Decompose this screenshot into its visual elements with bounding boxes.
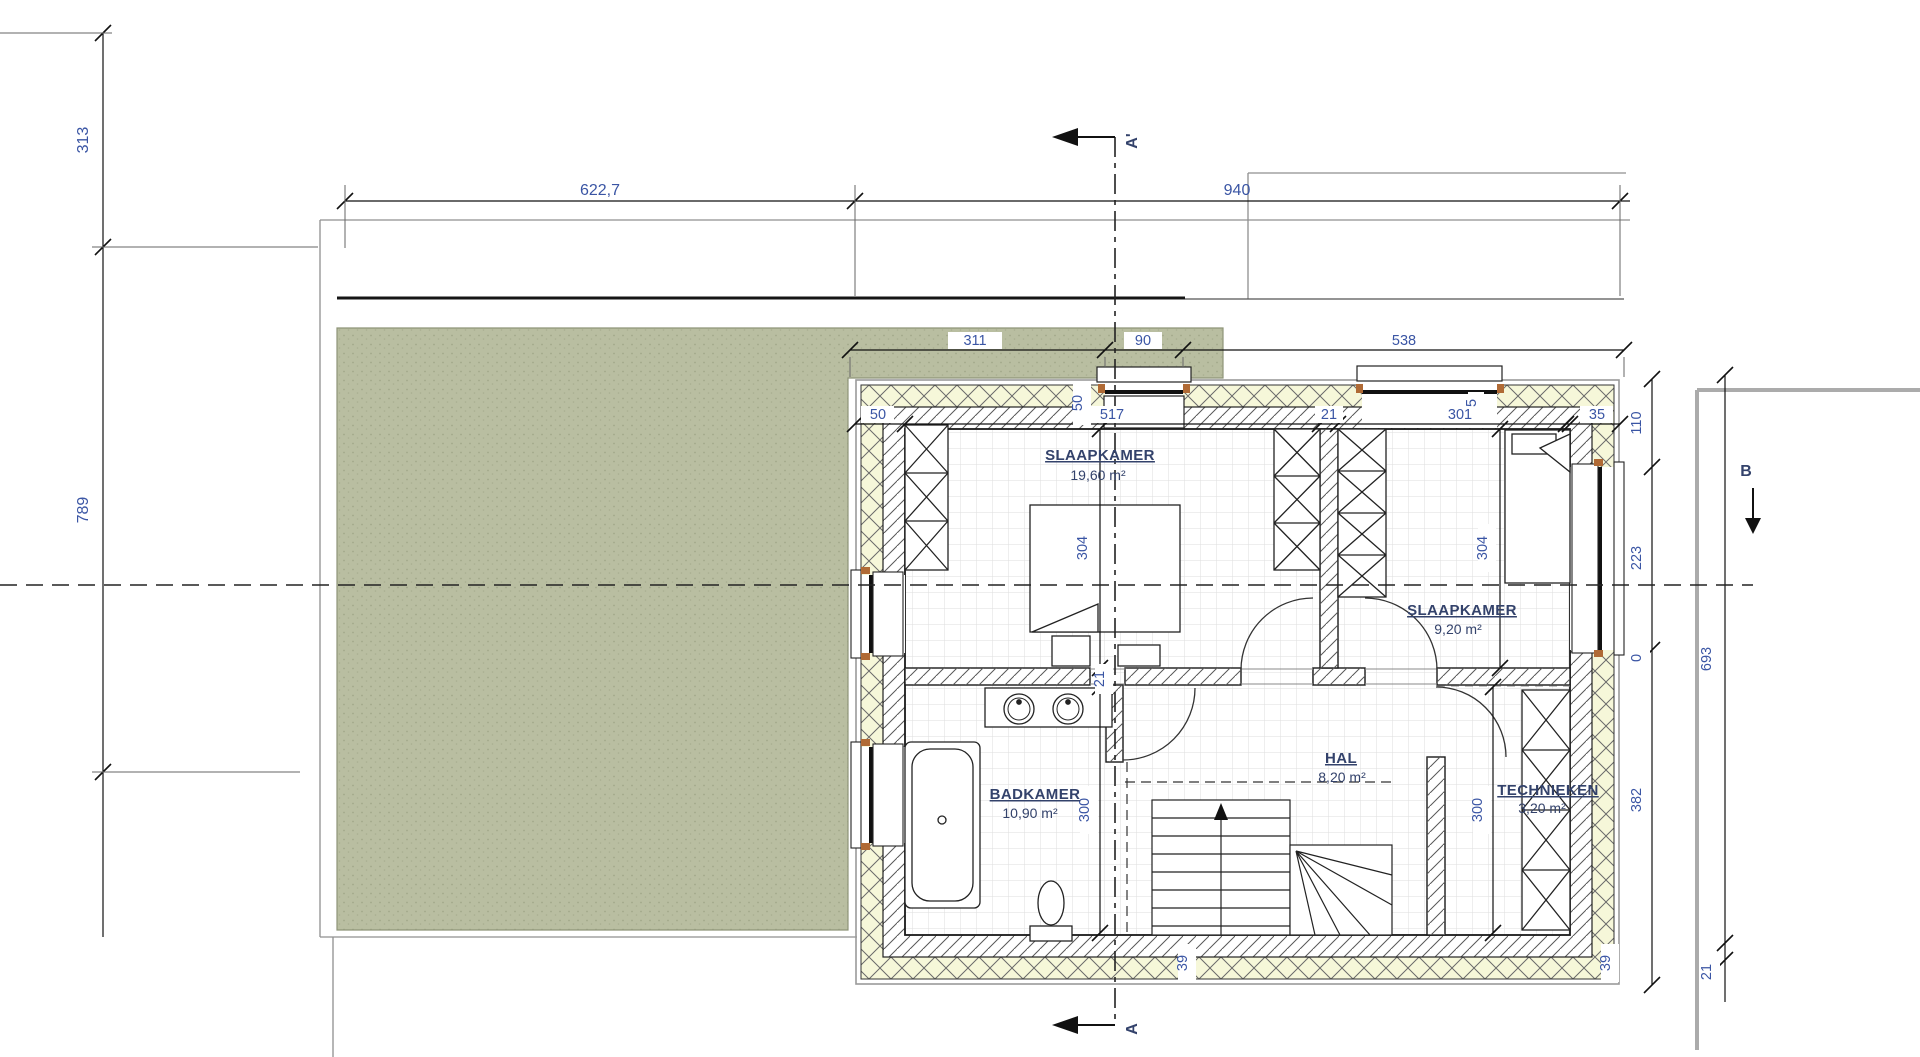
dim-304-bedroom2: 304	[1475, 536, 1491, 560]
room-label-technieken: TECHNIEKEN	[1497, 782, 1599, 799]
dim-39-left: 39	[1175, 955, 1191, 971]
window-left-1	[851, 567, 905, 660]
dim-21-top: 21	[1321, 407, 1337, 423]
dim-300-technieken: 300	[1470, 798, 1486, 822]
dim-301: 301	[1448, 407, 1472, 423]
dim-21-bottom-right: 21	[1699, 964, 1715, 980]
dim-roof-311: 311	[963, 333, 986, 349]
dim-left-789: 789	[75, 497, 92, 524]
section-arrow-a-bottom-icon	[1052, 1016, 1078, 1034]
roof-edge-lines	[337, 298, 1624, 299]
bed-2	[1505, 430, 1570, 583]
dim-21-wall-opening: 21	[1092, 671, 1108, 687]
wardrobe-mid-left	[1274, 429, 1320, 570]
floorplan-drawing: 622,7 940 313 789 311 90 538 50 50 517 2…	[0, 0, 1920, 1057]
room-area-technieken: 3,20 m²	[1518, 800, 1566, 816]
dim-top-940: 940	[1224, 182, 1251, 199]
room-label-badkamer: BADKAMER	[990, 786, 1081, 803]
dim-roof-538: 538	[1392, 333, 1416, 349]
dim-39-right: 39	[1598, 955, 1614, 971]
dim-223: 223	[1629, 546, 1645, 570]
dim-382: 382	[1629, 788, 1645, 812]
dim-wall-50-left: 50	[870, 407, 886, 423]
room-label-hal: HAL	[1325, 750, 1357, 767]
room-area-slaapkamer-2: 9,20 m²	[1434, 621, 1482, 637]
wardrobe-bedroom1	[905, 425, 948, 570]
section-arrow-a-top-icon	[1052, 128, 1078, 146]
bathtub	[905, 742, 980, 908]
building	[851, 366, 1624, 984]
dim-0: 0	[1629, 654, 1645, 662]
room-area-slaapkamer-1: 19,60 m²	[1070, 467, 1126, 483]
section-label-b: B	[1740, 463, 1752, 480]
neighbor-building-outline	[1697, 390, 1920, 1050]
room-label-slaapkamer-1: SLAAPKAMER	[1045, 447, 1155, 464]
section-arrow-b-icon	[1745, 518, 1761, 534]
dim-304-bedroom1: 304	[1075, 536, 1091, 560]
dim-517: 517	[1100, 407, 1124, 423]
wardrobe-mid-right	[1338, 429, 1386, 597]
dim-left-313: 313	[75, 127, 92, 154]
dim-roof-90: 90	[1135, 333, 1151, 349]
dim-35: 35	[1589, 407, 1605, 423]
room-label-slaapkamer-2: SLAAPKAMER	[1407, 602, 1517, 619]
dim-110: 110	[1629, 411, 1645, 434]
room-area-hal: 8,20 m²	[1318, 769, 1366, 785]
window-left-2	[851, 739, 905, 850]
dim-top-622-7: 622,7	[580, 182, 620, 199]
window-right	[1570, 459, 1624, 657]
section-label-a-prime: A'	[1124, 133, 1141, 148]
dim-wall-50-top: 50	[1070, 395, 1086, 411]
floorplan-canvas: 622,7 940 313 789 311 90 538 50 50 517 2…	[0, 0, 1920, 1057]
room-area-badkamer: 10,90 m²	[1002, 805, 1058, 821]
section-label-a: A	[1124, 1023, 1141, 1035]
dim-693: 693	[1699, 647, 1715, 671]
dim-5: 5	[1464, 399, 1480, 407]
